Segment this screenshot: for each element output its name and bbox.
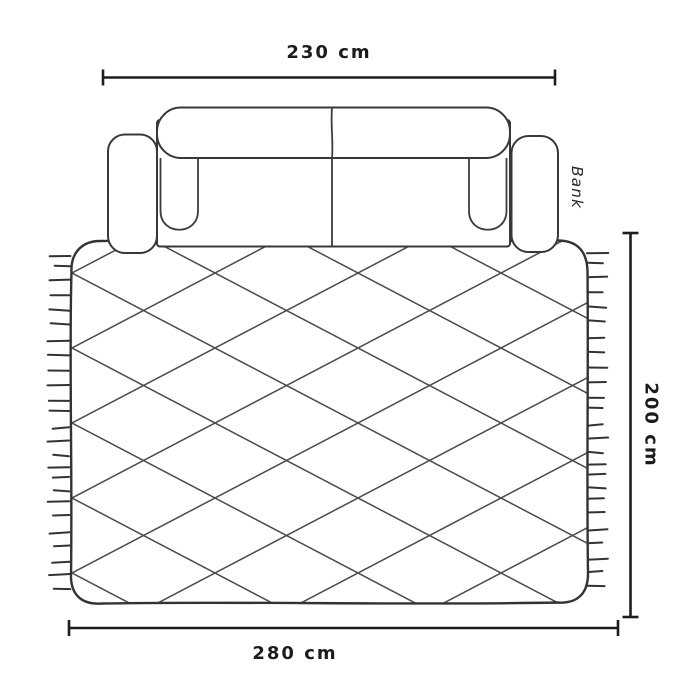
rug-fringe-left <box>48 256 71 589</box>
fringe-stroke <box>587 529 608 530</box>
fringe-stroke <box>51 323 70 324</box>
sofa-armrest-left <box>108 135 157 254</box>
rug-height-label: 200 cm <box>641 382 662 467</box>
fringe-stroke <box>48 355 69 356</box>
fringe-stroke <box>49 574 70 575</box>
dimension-rug-height <box>623 233 639 617</box>
fringe-stroke <box>53 477 69 478</box>
sofa-backrest <box>157 108 510 159</box>
fringe-stroke <box>587 352 604 353</box>
fringe-stroke <box>52 562 70 563</box>
fringe-stroke <box>587 474 605 475</box>
sofa-cushion-divider <box>332 108 333 246</box>
fringe-stroke <box>54 546 70 547</box>
fringe-stroke <box>49 309 69 310</box>
rug-size-diagram: 230 cm 280 cm 200 cm Bank <box>0 0 700 700</box>
fringe-stroke <box>587 338 604 339</box>
fringe-stroke <box>587 452 603 454</box>
fringe-stroke <box>587 320 605 321</box>
fringe-stroke <box>587 512 605 513</box>
sofa-name-label: Bank <box>568 166 586 209</box>
fringe-stroke <box>50 532 70 533</box>
fringe-stroke <box>48 441 70 442</box>
sofa-width-label: 230 cm <box>286 42 371 63</box>
fringe-stroke <box>587 306 606 307</box>
fringe-stroke <box>587 263 603 264</box>
fringe-stroke <box>587 571 602 572</box>
rug <box>71 240 588 603</box>
fringe-stroke <box>54 490 69 491</box>
fringe-stroke <box>55 266 71 267</box>
fringe-stroke <box>50 280 71 281</box>
dimension-rug-width <box>69 620 618 636</box>
dimension-sofa-width <box>103 70 555 86</box>
sofa-armrest-right <box>512 136 559 252</box>
fringe-stroke <box>587 424 603 426</box>
fringe-stroke <box>587 487 606 488</box>
diagram-svg: 230 cm 280 cm 200 cm Bank <box>0 0 700 700</box>
fringe-stroke <box>53 515 69 516</box>
fringe-stroke <box>53 455 69 457</box>
rug-fringe-right <box>587 253 608 586</box>
rug-width-label: 280 cm <box>252 643 337 664</box>
sofa <box>108 108 558 254</box>
fringe-stroke <box>53 427 69 429</box>
rug-outline <box>71 240 588 603</box>
fringe-stroke <box>587 559 608 560</box>
fringe-stroke <box>587 543 602 544</box>
fringe-stroke <box>587 438 608 439</box>
fringe-stroke <box>587 277 607 278</box>
fringe-stroke <box>48 341 70 342</box>
